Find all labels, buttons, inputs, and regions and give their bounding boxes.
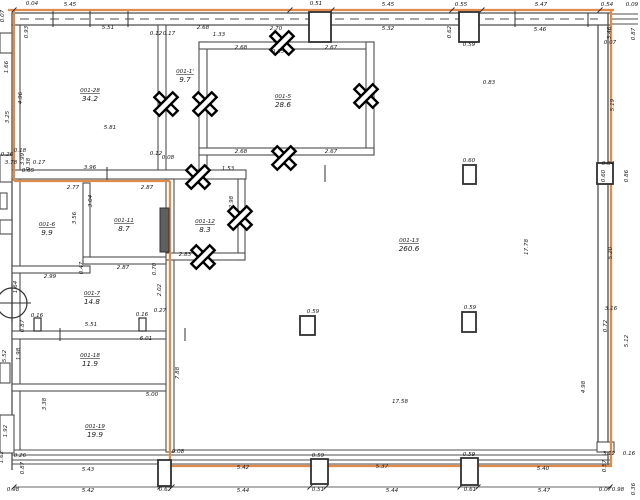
column [461,458,478,485]
dimension-label: 0.62 [447,25,453,38]
room-label-group: 001-714.8 [84,291,101,306]
column [309,12,331,42]
dimension-label: 2.99 [44,274,57,280]
column [462,312,476,332]
dimension-label: 0.47 [79,261,85,274]
dimension-label: 0.93 [24,25,30,38]
room-label-group: 001-1919.9 [85,424,105,439]
dimension-label: 6.01 [140,336,152,342]
dimension-label: 0.36 [631,482,637,495]
dimension-label: 0.59 [463,42,476,48]
room-area: 28.6 [275,100,291,109]
dimension-label: 0.12 [150,151,163,157]
dimension-label: 3.46 [607,26,613,39]
dimension-label: 0.87 [20,319,26,332]
dimension-label: 0.57 [602,459,608,472]
column [311,459,328,484]
room-area: 14.8 [84,297,100,306]
dimension-label: 0.07 [599,487,612,493]
dimension-label: 0.12 [150,31,163,37]
dimension-label: 4.98 [581,380,587,393]
dimension-label: 4.96 [18,91,24,104]
floor-plan-svg: 0.045.450.515.450.555.470.540.090.075.51… [0,0,640,500]
dimension-label: 0.04 [26,1,39,7]
dimension-label: 0.59 [464,305,477,311]
dimension-label: 0.60 [463,158,476,164]
dimension-label: 2.02 [157,283,163,296]
dimension-label: 0.83 [483,80,496,86]
dimension-label: 0.17 [163,31,176,37]
dimension-label: 2.70 [270,26,283,32]
dimension-label: 0.04 [602,161,615,167]
dimension-label: 3.25 [5,110,11,123]
room-label-group: 001-1811.9 [80,353,100,368]
dimension-label: 5.42 [82,488,95,494]
dimension-label: 5.52 [2,349,8,362]
dimension-label: 1.98 [16,347,22,360]
dimension-label: 5.46 [534,27,547,33]
wall-stub [0,193,7,209]
dimension-label: 1.92 [3,424,9,437]
dimension-label: 0.16 [31,313,44,319]
dimension-label: 0.07 [604,40,617,46]
dimension-label: 0.61 [464,487,476,493]
dimension-label: 0.26 [1,152,14,158]
dimension-label: 5.45 [382,2,395,8]
dimension-label: 3.38 [42,397,48,410]
room-label-group: 001-528.6 [275,94,292,109]
room-area: 260.6 [399,244,420,253]
dimension-label: 2.87 [141,185,154,191]
dimension-label: 0.87 [631,27,637,40]
dimension-label: 5.47 [535,2,548,8]
dimension-label: 5.44 [237,488,250,494]
dimension-label: 5.81 [104,125,116,131]
dimension-label: 1.53 [222,166,235,172]
dimension-label: 0.54 [601,2,614,8]
column [459,12,479,42]
dimension-label: 1.62 [0,450,5,463]
dimension-label: 0.59 [463,452,476,458]
dimension-label: 0.59 [307,309,320,315]
room-area: 19.9 [87,430,103,439]
dimension-label: 0.55 [455,2,468,8]
column [463,165,476,184]
door [139,318,146,331]
wall-stub [0,33,12,53]
dimension-label: 0.27 [154,308,167,314]
dimension-label: 2.68 [235,149,248,155]
dimension-label: 0.08 [172,449,185,455]
dimension-label: 17.58 [392,399,408,405]
dimension-label: 1.33 [213,32,226,38]
dimension-label: 2.87 [117,265,130,271]
dimension-label: 5.45 [64,2,77,8]
dimension-label: 2.67 [325,45,338,51]
wall-stub [0,220,12,234]
dimension-label: 0.86 [624,169,630,182]
room-area: 9.9 [41,228,53,237]
dimension-label: 0.98 [7,487,20,493]
dimension-label: 0.51 [312,487,324,493]
dimension-label: 3.16 [605,306,618,312]
dimension-label: 17.78 [524,239,530,255]
interior-wall [12,384,166,391]
dimension-label: 3.04 [88,194,94,207]
dimension-label: 0.08 [162,155,175,161]
dimension-label: 0.87 [20,461,26,474]
dimension-label: 5.43 [82,467,95,473]
dimension-label: 2.83 [179,252,192,258]
dimension-label: 3.78 [5,160,18,166]
dimension-label: 5.32 [382,26,395,32]
dimension-label: 5.51 [85,322,97,328]
dimension-label: 2.77 [67,185,80,191]
room-area: 8.3 [199,225,211,234]
dimension-label: 0.09 [626,2,639,8]
dimension-label: 5.42 [237,465,250,471]
interior-wall [12,170,246,179]
dimension-label: 0.70 [152,262,158,275]
dimension-label: 5.37 [376,464,389,470]
room-area: 11.9 [82,359,98,368]
room-area: 34.2 [82,94,98,103]
room-label-group: 001-2834.2 [80,88,100,103]
dimension-label: 0.65 [22,168,35,174]
dimension-label: 0.07 [0,9,6,22]
dimension-label: 2.68 [197,25,210,31]
dimension-label: 5.12 [624,334,630,347]
room-label-group: 001-13260.6 [399,238,420,253]
dimension-label: 0.59 [312,453,325,459]
dimension-label: 0.72 [603,319,609,332]
room-area: 9.7 [179,75,191,84]
dimension-label: 0.17 [33,160,46,166]
dimension-label: 3.96 [84,165,97,171]
room-area: 8.7 [118,224,130,233]
column [158,460,171,486]
floor-plan: 0.045.450.515.450.555.470.540.090.075.51… [0,0,640,500]
dimension-label: 0.51 [310,1,322,7]
dimension-label: 5.40 [537,466,550,472]
dimension-label: 1.64 [13,280,19,293]
dimension-label: 0.62 [159,487,172,493]
dimension-label: 1.66 [4,60,10,73]
dimension-label: 0.98 [612,487,625,493]
dimension-label: 2.98 [229,195,235,208]
dimension-label: 2.68 [235,45,248,51]
dimension-label: 5.47 [538,488,551,494]
dimension-label: 0.16 [623,451,636,457]
dimension-label: 5.19 [610,98,616,111]
dimension-label: 2.67 [325,149,338,155]
dimension-label: 3.56 [72,211,78,224]
dimension-label: 0.15 [272,49,285,55]
door-opening-filled [160,208,169,252]
wall-stub [0,363,10,383]
dimension-label: 0.16 [136,312,149,318]
dimension-label: 5.44 [386,488,399,494]
dimension-label: 7.88 [175,366,181,379]
dimension-label: 5.51 [102,25,114,31]
dimension-label: 5.00 [146,392,159,398]
door [34,318,41,331]
dimension-label: 0.60 [601,169,607,182]
column [300,316,315,335]
dimension-label: 5.20 [608,246,614,259]
dimension-label: 3.12 [603,451,616,457]
dimension-label: 0.26 [14,453,27,459]
